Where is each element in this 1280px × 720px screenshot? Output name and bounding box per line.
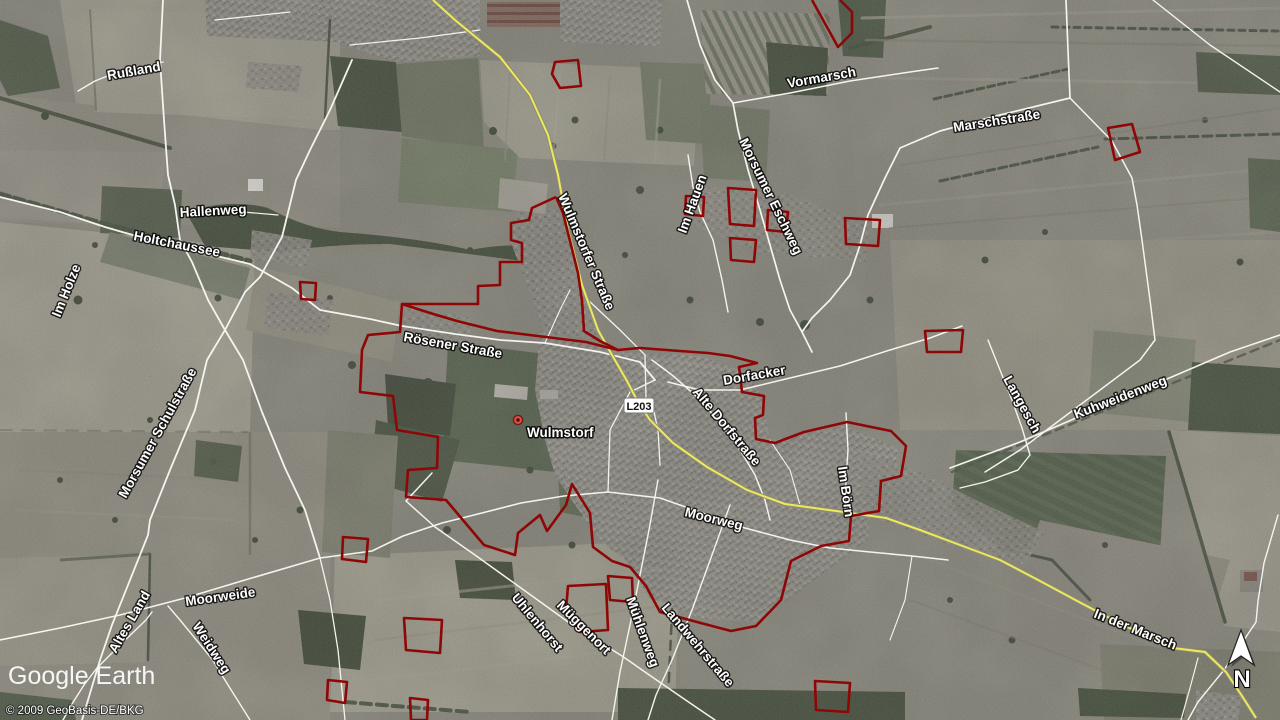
svg-text:© 2009 GeoBasis-DE/BKG: © 2009 GeoBasis-DE/BKG	[6, 705, 144, 717]
svg-text:N: N	[1233, 666, 1250, 693]
svg-text:Google Earth: Google Earth	[8, 662, 155, 690]
svg-text:L203: L203	[626, 401, 651, 413]
svg-text:Wulmstorf: Wulmstorf	[527, 425, 594, 440]
